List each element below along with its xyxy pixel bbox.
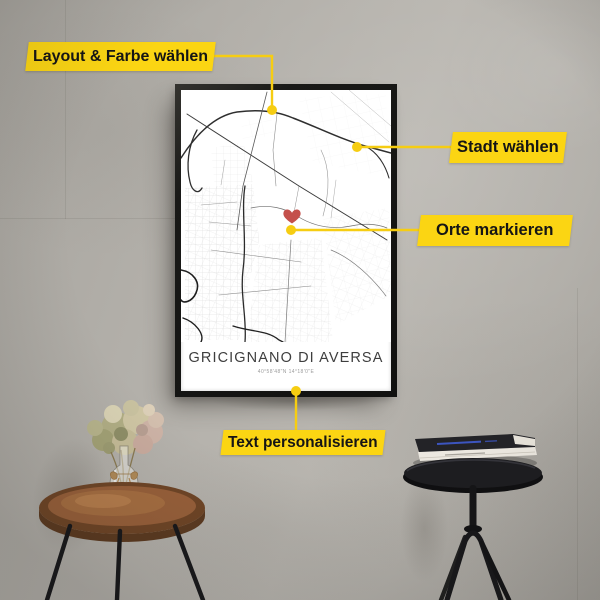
callout-layout-farbe-label: Layout & Farbe wählen	[33, 48, 208, 66]
callout-orte-markieren[interactable]: Orte markieren	[417, 215, 573, 246]
metal-stool	[385, 425, 575, 600]
map-poster: GRICIGNANO DI AVERSA 40°58'48"N 14°18'0"…	[181, 90, 391, 391]
callout-layout-farbe[interactable]: Layout & Farbe wählen	[25, 42, 216, 71]
side-table	[25, 390, 225, 600]
callout-stadt-waehlen[interactable]: Stadt wählen	[449, 132, 567, 163]
callout-text-personalisieren[interactable]: Text personalisieren	[220, 430, 385, 455]
scene: GRICIGNANO DI AVERSA 40°58'48"N 14°18'0"…	[0, 0, 600, 600]
city-map	[181, 90, 391, 342]
wall-seam	[65, 0, 66, 219]
stool-legs	[441, 485, 509, 600]
wall-seam	[0, 218, 176, 219]
poster-coordinates: 40°58'48"N 14°18'0"E	[181, 369, 391, 375]
callout-orte-markieren-label: Orte markieren	[436, 221, 553, 240]
callout-text-personalisieren-label: Text personalisieren	[228, 434, 378, 452]
poster-title: GRICIGNANO DI AVERSA	[181, 350, 391, 366]
poster-frame: GRICIGNANO DI AVERSA 40°58'48"N 14°18'0"…	[175, 84, 397, 397]
wall-seam	[577, 288, 578, 600]
callout-stadt-waehlen-label: Stadt wählen	[457, 138, 559, 157]
